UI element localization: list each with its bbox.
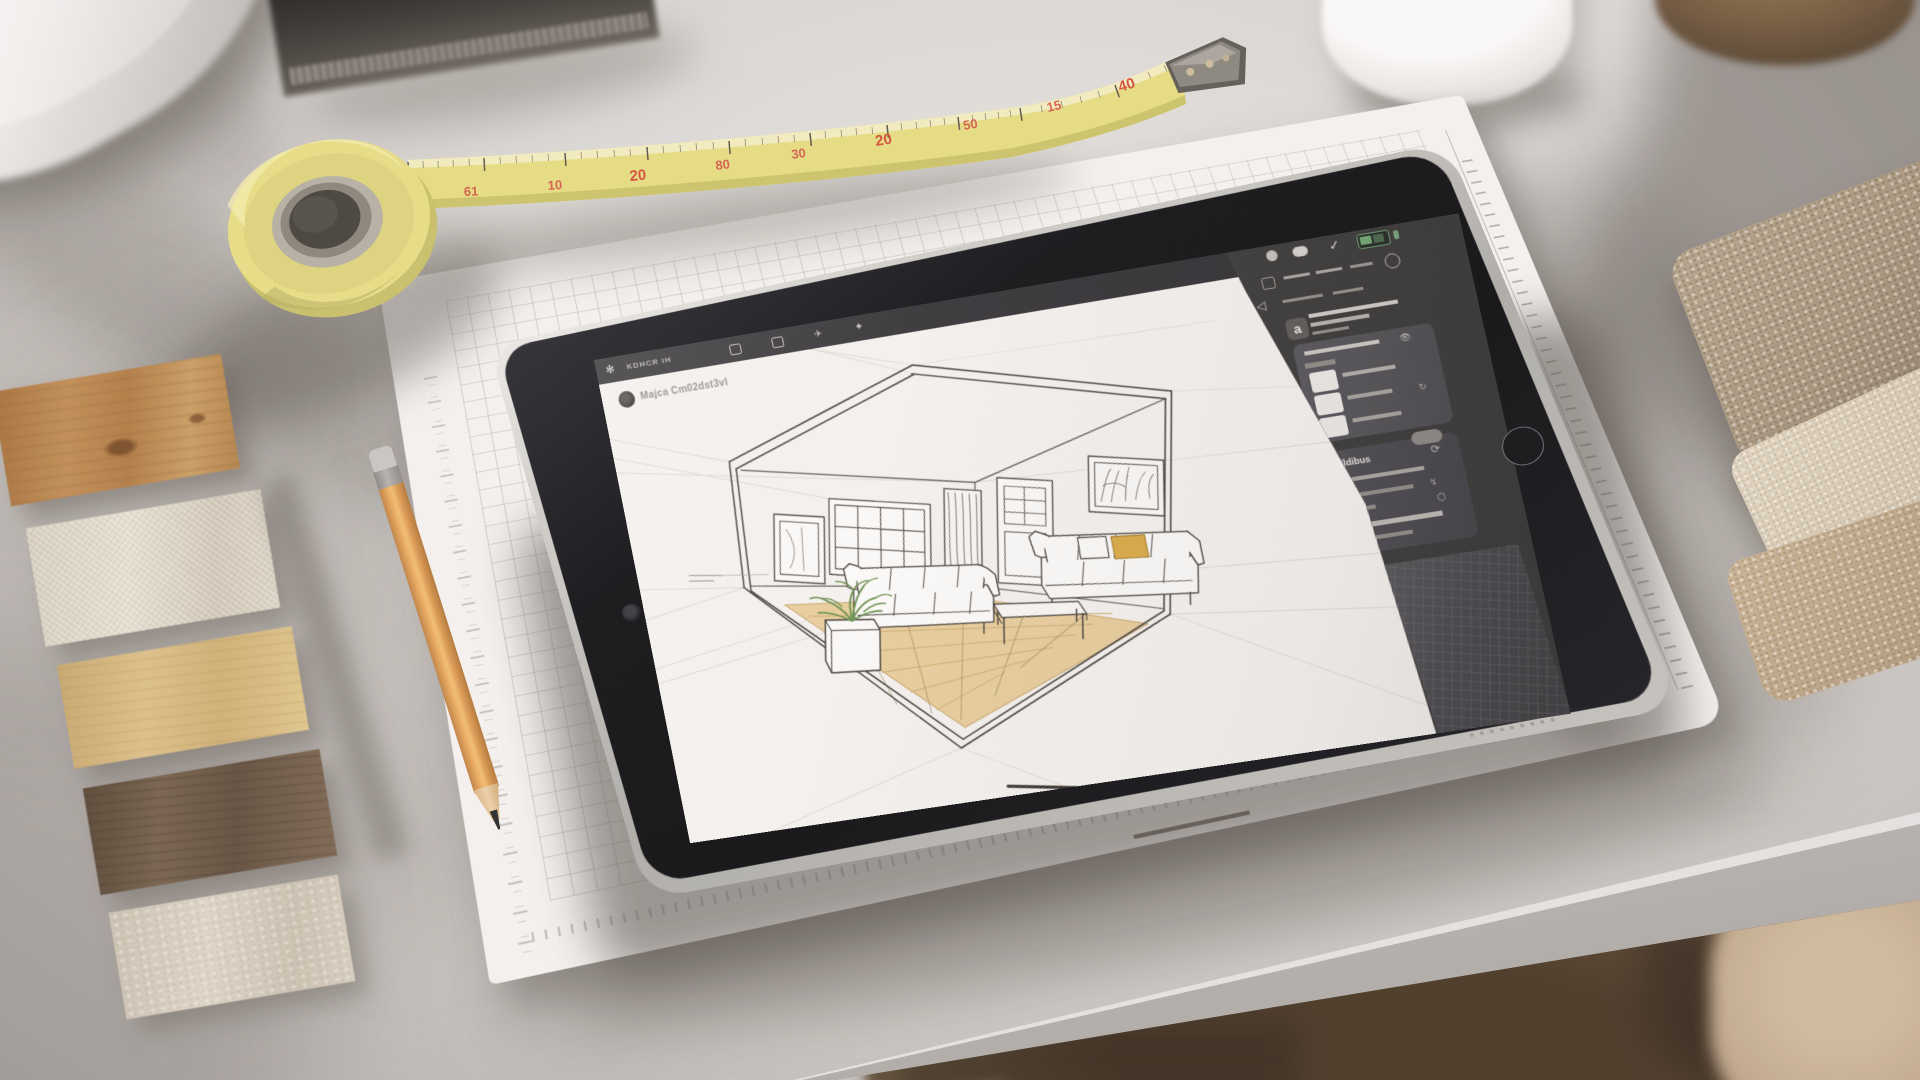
svg-text:61: 61 bbox=[464, 184, 479, 199]
svg-text:80: 80 bbox=[715, 156, 731, 173]
svg-text:20: 20 bbox=[874, 131, 893, 150]
svg-text:10: 10 bbox=[547, 177, 562, 193]
svg-text:30: 30 bbox=[790, 145, 806, 162]
svg-text:20: 20 bbox=[629, 167, 647, 185]
svg-text:50: 50 bbox=[962, 116, 979, 133]
